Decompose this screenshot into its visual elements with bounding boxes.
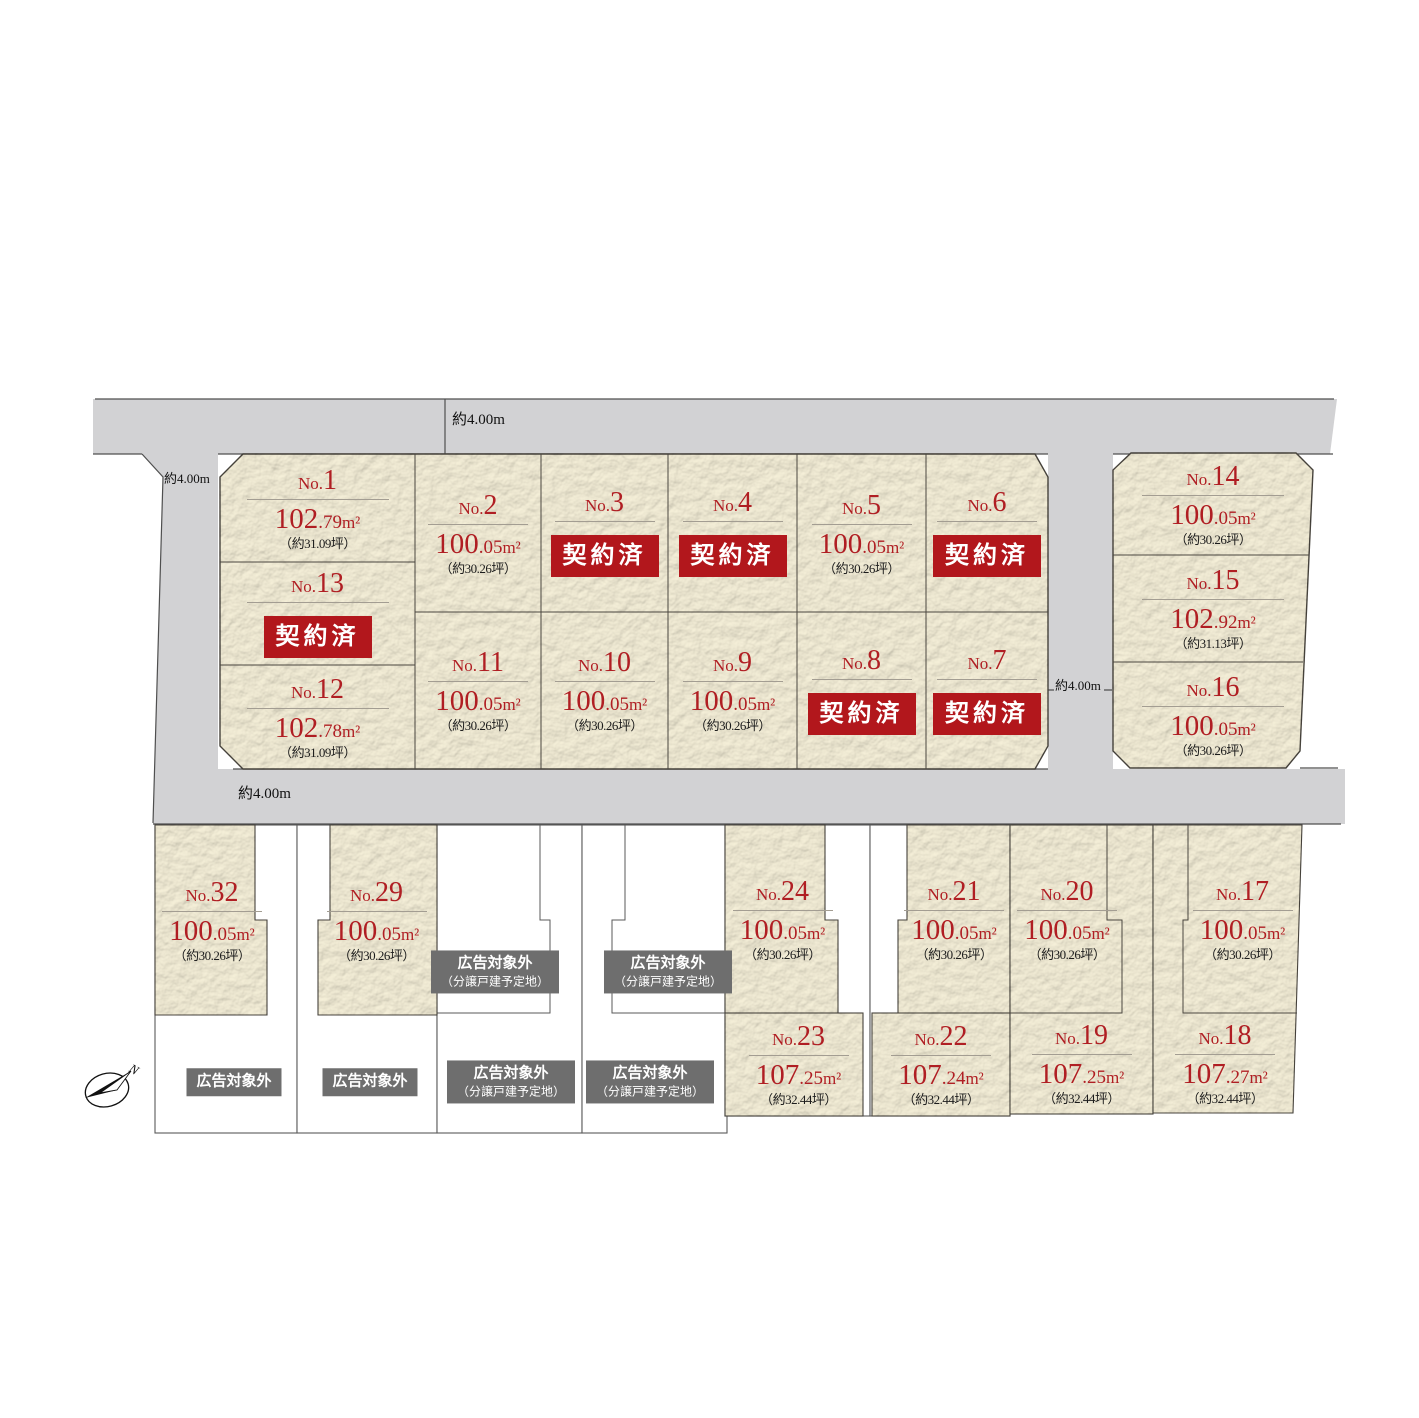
road-width-label-right: 約4.00m	[1055, 675, 1101, 694]
compass-north-label: N	[126, 1060, 143, 1078]
road-middle	[233, 769, 1345, 824]
lot-23-shape	[725, 1013, 863, 1116]
lot-22-shape	[872, 1013, 1010, 1116]
excluded-label-col4-bottom: 広告対象外 （分譲戸建予定地）	[586, 1060, 714, 1103]
lot-24-shape	[725, 825, 838, 1013]
lot-21-shape	[898, 825, 1010, 1013]
block-lower-right-2	[1153, 825, 1302, 1113]
lot-map: N 約4.00m 約4.00m 約4.00m 約4.00m No.1 102.7…	[0, 0, 1419, 1418]
compass-icon: N	[81, 1060, 142, 1112]
lot-32-shape	[155, 825, 267, 1015]
excluded-label-col4-top: 広告対象外 （分譲戸建予定地）	[604, 950, 732, 993]
lot-29-shape	[318, 825, 437, 1015]
road-width-label-top: 約4.00m	[452, 408, 505, 429]
block-lower-right-1	[1010, 825, 1153, 1114]
road-width-label-middle: 約4.00m	[238, 782, 291, 803]
lot-map-shapes: N	[0, 0, 1419, 1418]
excluded-label-col3-bottom: 広告対象外 （分譲戸建予定地）	[447, 1060, 575, 1103]
road-top	[93, 399, 1337, 454]
excluded-label-29: 広告対象外	[322, 1068, 417, 1096]
block-upper-right	[1113, 453, 1313, 768]
road-right	[1048, 454, 1113, 769]
excluded-label-32: 広告対象外	[186, 1068, 281, 1096]
road-width-label-left: 約4.00m	[164, 468, 210, 487]
excluded-label-col3-top: 広告対象外 （分譲戸建予定地）	[431, 950, 559, 993]
